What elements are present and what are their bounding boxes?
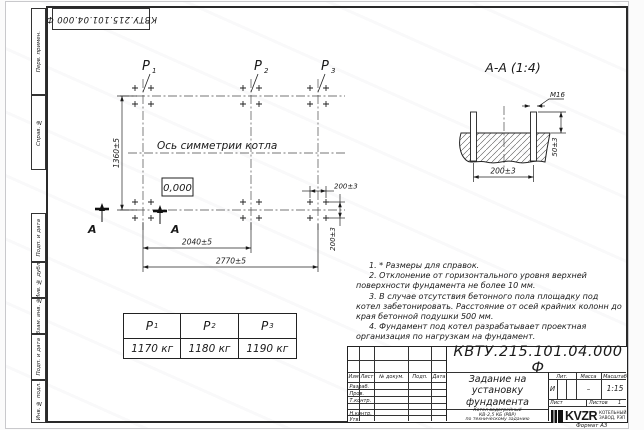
tb-sheet-header: Лист [550,400,563,406]
note-1: 1. * Размеры для справок. [356,261,622,271]
tb-row-utv: Утв. [350,417,361,423]
load-label-p2-sub: 2 [264,67,269,75]
load-label-p3-sub: 3 [331,67,335,75]
tb-mass-value: – [576,385,601,393]
tb-col-podp: Подп. [409,374,431,380]
anchor-bolt-left [471,112,477,161]
dim-200-label: 200±3 [490,167,516,176]
drawing-page: Перв. примен. Справ. № Подп. и дата Инв.… [0,0,644,430]
tb-lit-header: Лит. [548,374,576,380]
tb-col-izm: Изм. [349,374,360,380]
section-letter-2: А [170,223,180,236]
load-table-header: Р2 [181,314,238,339]
dim-1360-label: 1360±5 [112,138,121,168]
dim-2770-label: 2770±5 [216,257,246,266]
thread-callout: М16 [522,91,565,106]
note-4: 4. Фундамент под котел разрабатывает про… [356,322,622,342]
kvzr-logo-caption: КОТЕЛЬНЫЙ ЗАВОД, РЭП [599,411,626,420]
load-table-value: 1180 кг [181,339,238,358]
tb-sheets-value: 1 [618,400,621,406]
level-mark: 0,000 [162,178,193,196]
tb-doc-title: Задание на установку фундамента [447,373,548,409]
level-mark-value: 0,000 [163,183,192,194]
thread-label: М16 [550,91,565,99]
tb-col-docnum: № докум. [375,374,408,380]
tb-scale-header: Масштаб [601,374,629,380]
dim-50-label: 50±3 [551,137,559,156]
foundation-section [460,106,550,171]
axis-label: Ось симметрии котла [157,140,277,152]
dim-bolt-h-label: 200±3 [334,183,358,191]
tb-row-tkontr: Т.контр. [350,398,372,404]
load-point-labels: Р 1 Р 2 Р 3 [142,59,335,92]
note-3: 3. В случае отсутствия бетонного пола пл… [356,292,622,323]
section-title: А-А (1:4) [484,60,540,75]
load-table-header: Р1 [124,314,181,339]
load-label-p3: Р [321,59,329,74]
tb-col-list: Лист [360,374,374,380]
section-cut-marks: А А [87,203,180,236]
anchor-bolt-right [531,112,537,161]
load-table-value: 1170 кг [124,339,181,358]
tb-product: Котел водогрейный КВ-2,5 КБ (РВР) по тех… [447,409,548,423]
title-block: Изм. Лист № докум. Подп. Дата Разраб. Пр… [347,346,628,423]
tb-row-razrab: Разраб. [350,384,370,390]
kvzr-logo-icon [551,410,563,423]
tb-mass-header: Масса [576,374,601,380]
load-table: Р1 Р2 Р3 1170 кг 1180 кг 1190 кг [123,313,297,359]
tb-row-prov: Пров. [350,391,365,397]
dimension-2040-2770: 2040±5 2770±5 [143,222,318,272]
tb-lit-value: И [548,385,557,393]
kvzr-logo: KVZR КОТЕЛЬНЫЙ ЗАВОД, РЭП [551,409,627,423]
tb-col-data: Дата [432,374,446,380]
note-2: 2. Отклонение от горизонтального уровня … [356,271,622,291]
dim-2040-label: 2040±5 [182,238,212,247]
tb-sheets-header: Листов [589,400,608,406]
load-label-p1-sub: 1 [152,67,156,75]
load-label-p1: Р [142,59,150,74]
notes-block: 1. * Размеры для справок. 2. Отклонение … [356,261,622,343]
load-table-value: 1190 кг [239,339,296,358]
load-table-header: Р3 [239,314,296,339]
plan-center-lines [120,79,345,230]
section-letter-1: А [87,223,97,236]
tb-designation: КВТУ.215.101.04.000 Ф [447,347,629,372]
load-label-p2: Р [254,59,262,74]
dimension-200-section: 200±3 [474,163,534,182]
kvzr-logo-text: KVZR [565,409,597,423]
tb-scale-value: 1:15 [601,384,629,393]
format-label: Формат А3 [576,423,607,429]
dim-bolt-v-label: 200±3 [329,227,337,251]
